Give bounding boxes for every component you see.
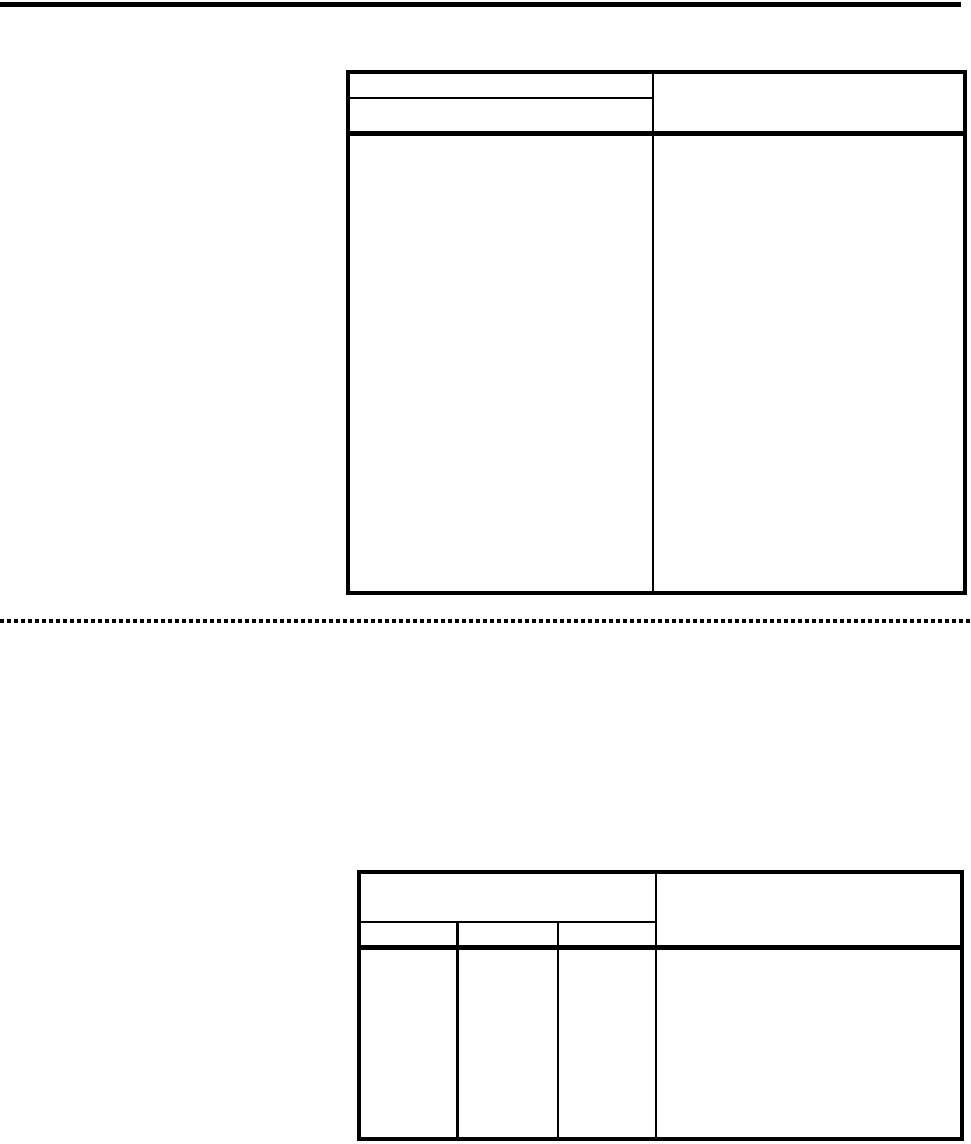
upper-table-body-left [350, 136, 652, 591]
lower-table-subheader-col1 [361, 923, 456, 945]
lower-table-header-left [361, 874, 655, 921]
lower-table-subheader-col3 [559, 923, 655, 945]
upper-table-header-bottom-rule [350, 131, 963, 136]
lower-table-body-col2 [459, 950, 557, 1137]
upper-table [346, 70, 967, 595]
upper-table-header-subdivider-line [350, 97, 652, 99]
upper-table-header-right [654, 74, 963, 131]
upper-table-column-divider [652, 74, 654, 591]
document-page [0, 0, 971, 1144]
upper-table-body-right [654, 136, 963, 591]
lower-table-body-col3 [559, 950, 655, 1137]
lower-table-header-right [657, 874, 960, 945]
lower-table-subheader-col2 [459, 923, 557, 945]
lower-table-body-right [657, 950, 960, 1137]
dashed-cut-separator [0, 619, 971, 623]
lower-table-subheader-top-line [361, 921, 655, 923]
lower-table [357, 870, 964, 1141]
lower-table-column2-divider [557, 921, 559, 1137]
lower-table-column1-divider [456, 921, 459, 1137]
upper-table-header-left-row1 [350, 74, 652, 97]
lower-table-header-bottom-rule [361, 945, 960, 950]
upper-table-header-left-row2 [350, 99, 652, 131]
lower-table-main-divider [655, 874, 657, 1137]
page-top-rule [0, 2, 961, 7]
lower-table-body-col1 [361, 950, 456, 1137]
